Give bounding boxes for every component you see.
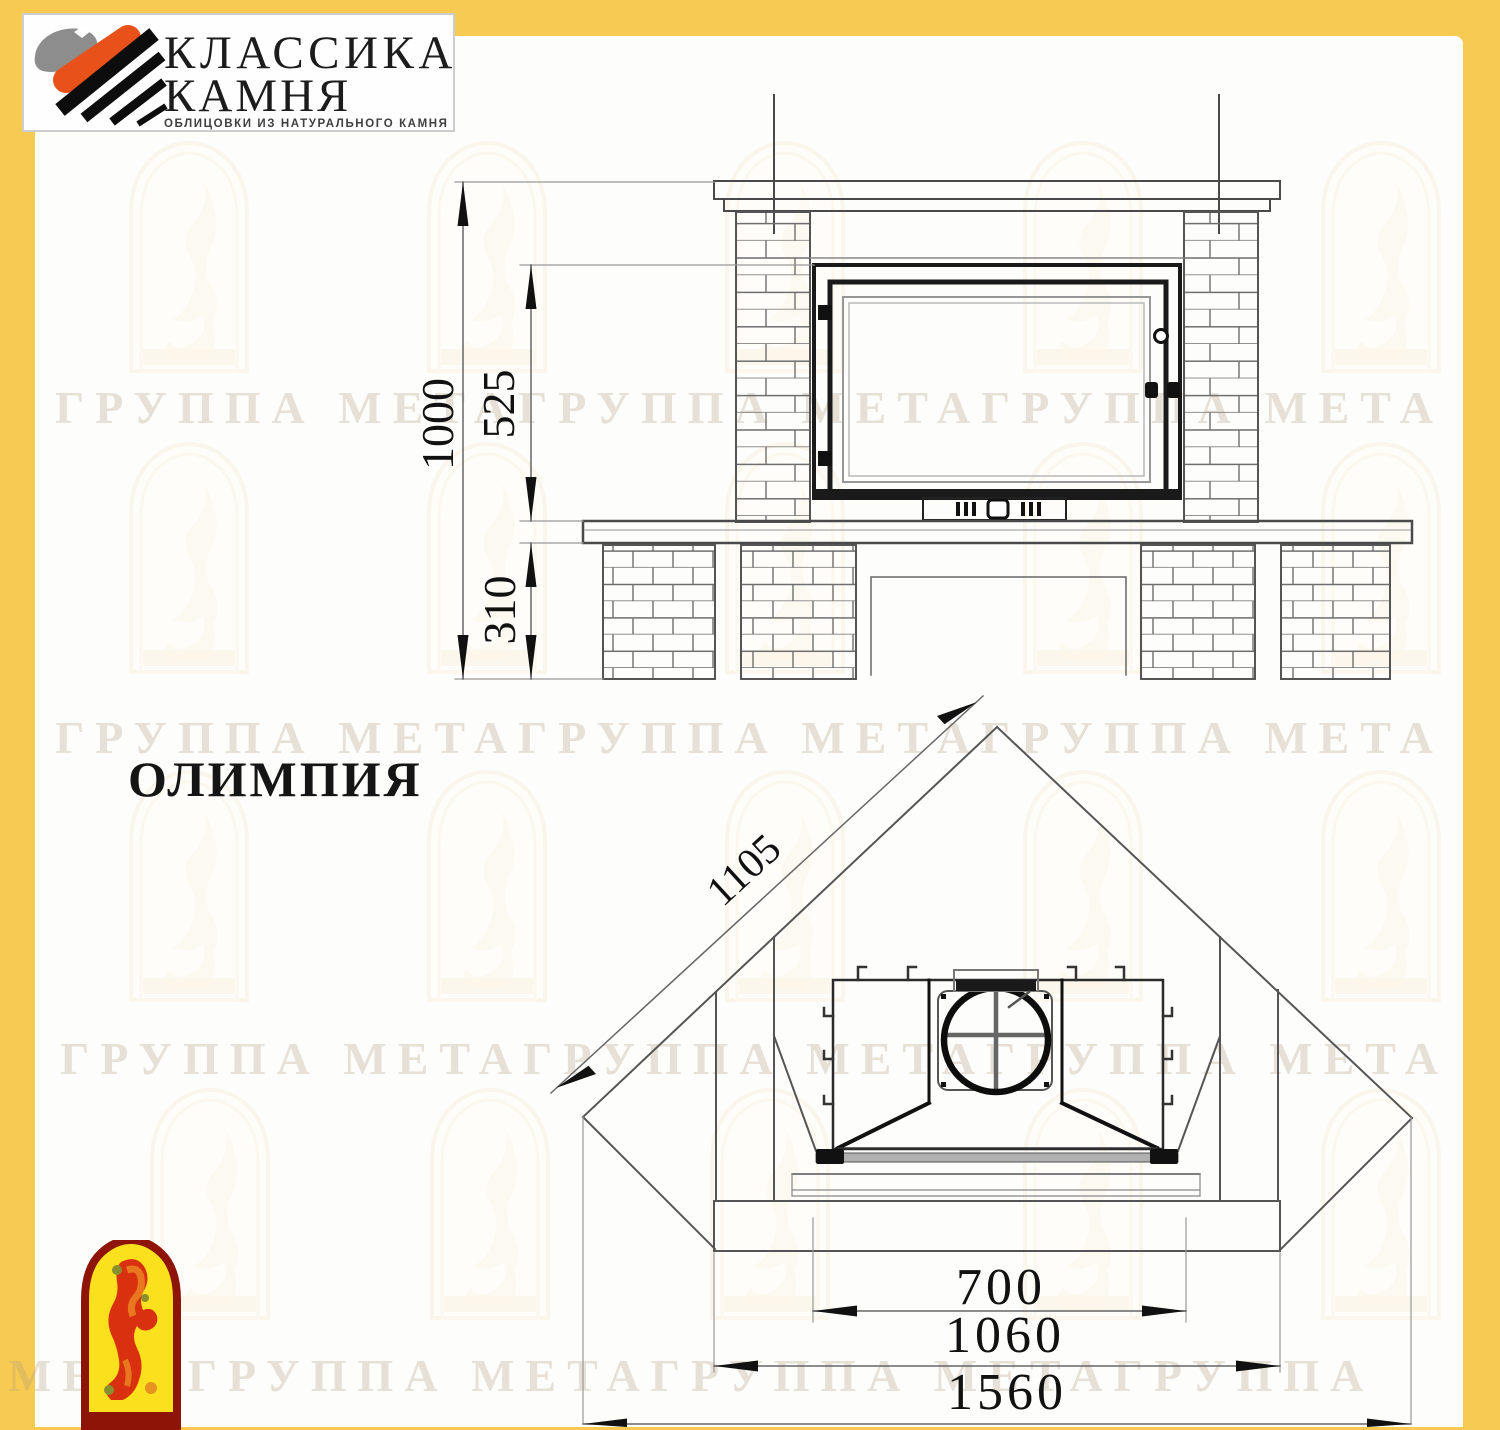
- svg-text:1000: 1000: [412, 378, 463, 470]
- svg-text:525: 525: [473, 370, 524, 439]
- svg-text:310: 310: [474, 576, 525, 645]
- svg-text:1105: 1105: [698, 826, 790, 916]
- svg-text:1060: 1060: [945, 1307, 1065, 1364]
- svg-text:1560: 1560: [947, 1364, 1067, 1421]
